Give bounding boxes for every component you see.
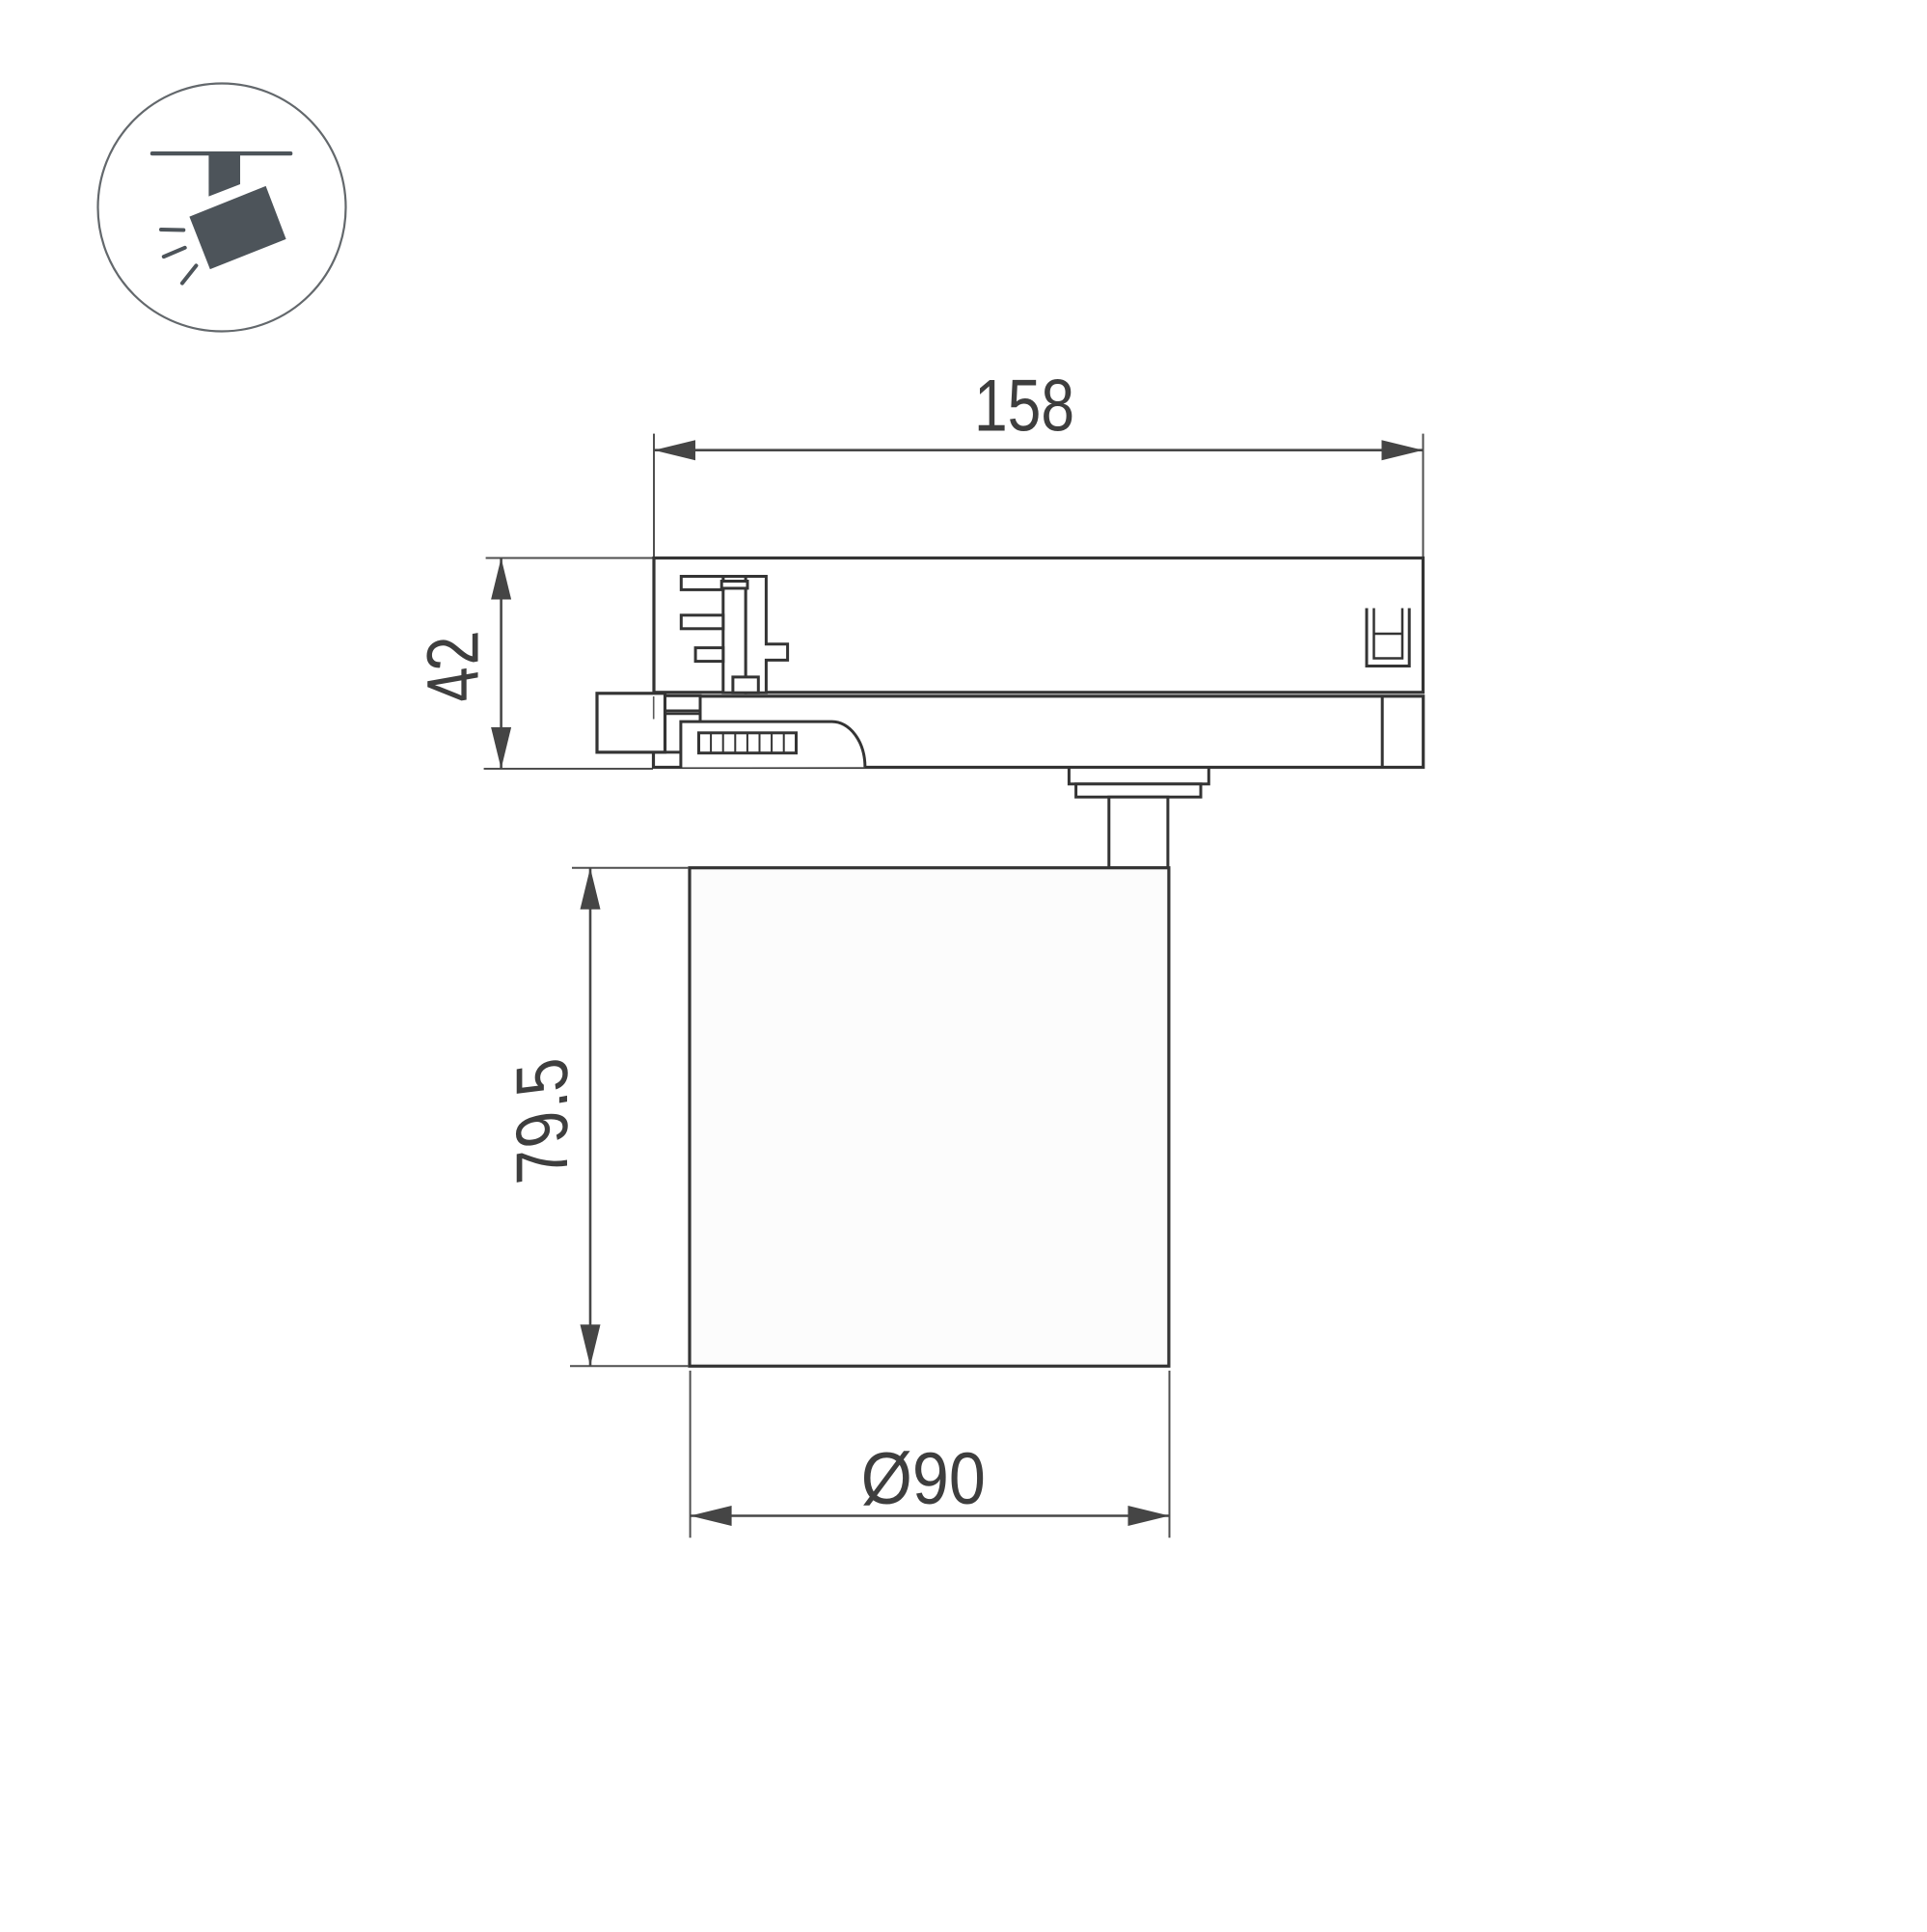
svg-text:158: 158 bbox=[974, 366, 1074, 448]
svg-text:42: 42 bbox=[413, 627, 494, 711]
svg-text:79.5: 79.5 bbox=[502, 1052, 584, 1188]
svg-text:Ø90: Ø90 bbox=[861, 1438, 986, 1520]
